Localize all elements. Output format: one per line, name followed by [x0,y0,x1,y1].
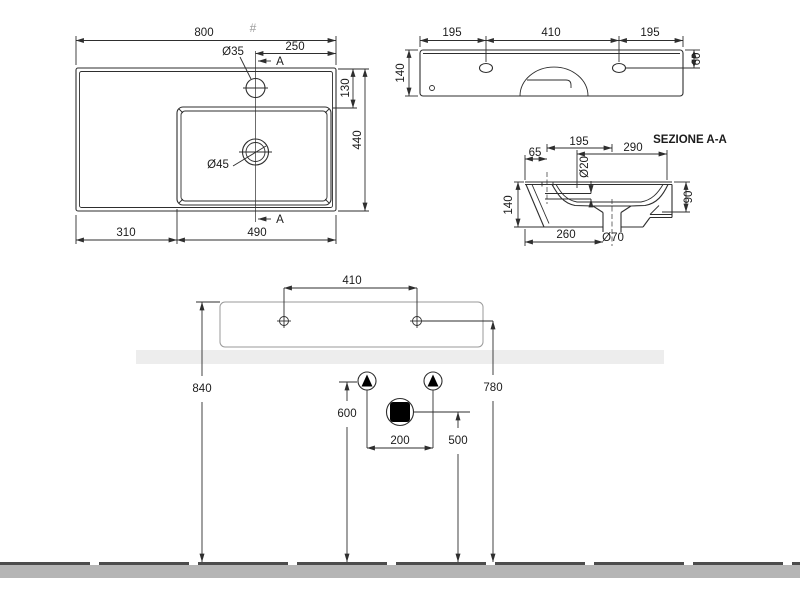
dim-490-label: 490 [247,227,266,239]
plan-dimensions [76,36,369,244]
water-supply-symbol-right [424,372,442,448]
basin-outline-installation [220,302,483,347]
dim-840-label: 840 [192,383,211,395]
dim-195-right-label: 195 [640,27,659,39]
wall-band [136,350,664,364]
dim-500-label: 500 [448,435,467,447]
basin-outline-plan [76,68,336,211]
fixing-hole-right [613,64,626,73]
dim-65-label: 65 [529,147,542,159]
hole-dia-20-label: Ø20 [579,156,591,178]
faucet-dia-label: Ø35 [222,46,244,58]
height-840-dim [196,302,220,562]
basin-rim-inner-plan [80,72,333,208]
fixing-hole-left [480,64,493,73]
drain-dia-label: Ø45 [207,159,229,171]
dim-140-front-label: 140 [395,63,407,82]
bowl-plan [177,107,331,205]
floor-band [0,565,800,578]
drain-dia-70-label: Ø70 [602,232,624,244]
section-title: SEZIONE A-A [653,134,727,146]
dim-200-label: 200 [390,435,409,447]
dim-250-label: 250 [285,41,304,53]
mounting-point-left [277,314,291,328]
mounting-point-right [410,314,424,328]
dim-130-label: 130 [340,78,352,97]
dim-260-label: 260 [556,229,575,241]
dim-410-front-label: 410 [541,27,560,39]
installation-view: 410 840 780 600 500 200 [0,275,800,578]
small-hole-front [430,86,435,91]
dim-310-label: 310 [116,227,135,239]
drain-arch-front [520,67,588,96]
drawing-page: 800 # Ø35 250 A 130 440 Ø45 310 490 A [0,0,800,600]
plan-view: 800 # Ø35 250 A 130 440 Ø45 310 490 A [76,21,369,244]
section-view: SEZIONE A-A [503,134,727,246]
section-marker-a-top: A [276,56,284,68]
section-marker-a-bottom: A [276,214,284,226]
dim-195-left-label: 195 [442,27,461,39]
dim-440-label: 440 [352,130,364,149]
dim-290-label: 290 [623,142,642,154]
front-view: 195 410 195 140 60 [395,27,703,96]
dim-195-section-label: 195 [569,136,588,148]
section-dimensions [514,144,690,246]
dim-800-label: 800 [194,27,213,39]
installation-410-dim [284,288,417,314]
dim-780-label: 780 [483,382,502,394]
front-dimensions [405,36,700,96]
drain-hole-symbol [233,139,272,166]
waste-outlet-symbol [387,399,471,426]
dim-90-label: 90 [683,191,695,204]
dim-410-installation-label: 410 [342,275,361,287]
dim-600-label: 600 [337,408,356,420]
section-profile [525,172,672,246]
washbasin-technical-drawing: 800 # Ø35 250 A 130 440 Ø45 310 490 A [0,0,800,600]
hash-mark: # [250,21,257,35]
dim-60-label: 60 [691,53,703,66]
water-supply-symbol-left [358,372,376,448]
basin-outline-front [420,50,683,96]
dim-140-section-label: 140 [503,195,515,214]
